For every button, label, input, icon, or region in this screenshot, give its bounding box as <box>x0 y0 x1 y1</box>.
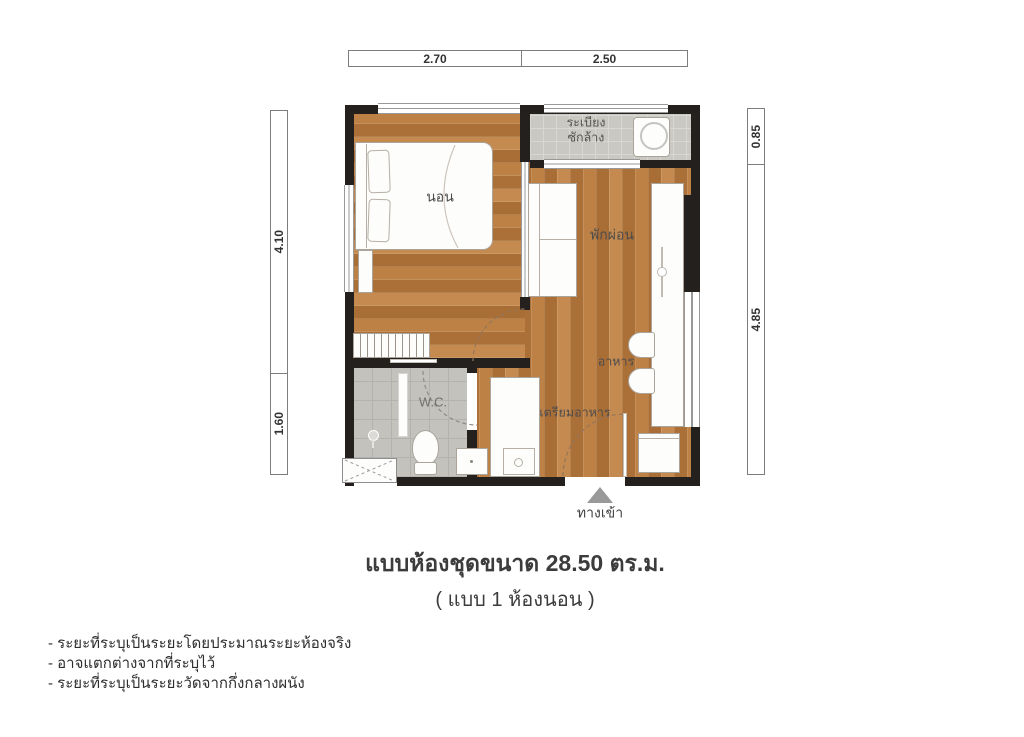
kitchen-label: เตรียมอาหาร <box>539 406 610 421</box>
entrance-arrow-icon <box>587 487 613 503</box>
dimension-bar-top: 2.70 2.50 <box>348 50 688 67</box>
plan-subtitle: ( แบบ 1 ห้องนอน ) <box>300 583 730 615</box>
entrance-label: ทางเข้า <box>577 506 623 521</box>
bedroom-label: นอน <box>426 190 454 205</box>
footnote-line: - ระยะที่ระบุเป็นระยะวัดจากกึ่งกลางผนัง <box>48 674 351 694</box>
dimension-left-upper: 4.10 <box>271 111 287 373</box>
living-label: พักผ่อน <box>590 228 634 243</box>
dimension-top-left: 2.70 <box>349 51 521 66</box>
dimension-bar-right: 0.85 4.85 <box>747 108 765 475</box>
dimension-bar-left: 4.10 1.60 <box>270 110 288 475</box>
dimension-right-upper: 0.85 <box>748 109 764 164</box>
wc-label: W.C. <box>419 395 447 410</box>
footnote-line: - อาจแตกต่างจากที่ระบุไว้ <box>48 654 351 674</box>
balcony-label-1: ระเบียง <box>566 116 605 131</box>
floorplan-page: 2.70 2.50 4.10 1.60 0.85 4.85 <box>0 0 1024 737</box>
floor-plan: นอน ระเบียง ซักล้าง พักผ่อน อาหาร เตรียม… <box>340 100 705 520</box>
dimension-top-right: 2.50 <box>521 51 687 66</box>
balcony-label-2: ซักล้าง <box>568 131 605 146</box>
footnote-line: - ระยะที่ระบุเป็นระยะโดยประมาณระยะห้องจร… <box>48 634 351 654</box>
footnotes: - ระยะที่ระบุเป็นระยะโดยประมาณระยะห้องจร… <box>48 634 351 694</box>
dimension-left-lower: 1.60 <box>271 373 287 474</box>
plan-title: แบบห้องชุดขนาด 28.50 ตร.ม. <box>300 546 730 582</box>
dimension-right-lower: 4.85 <box>748 164 764 474</box>
door-swing-overlay <box>340 100 705 520</box>
dining-label: อาหาร <box>598 355 635 370</box>
